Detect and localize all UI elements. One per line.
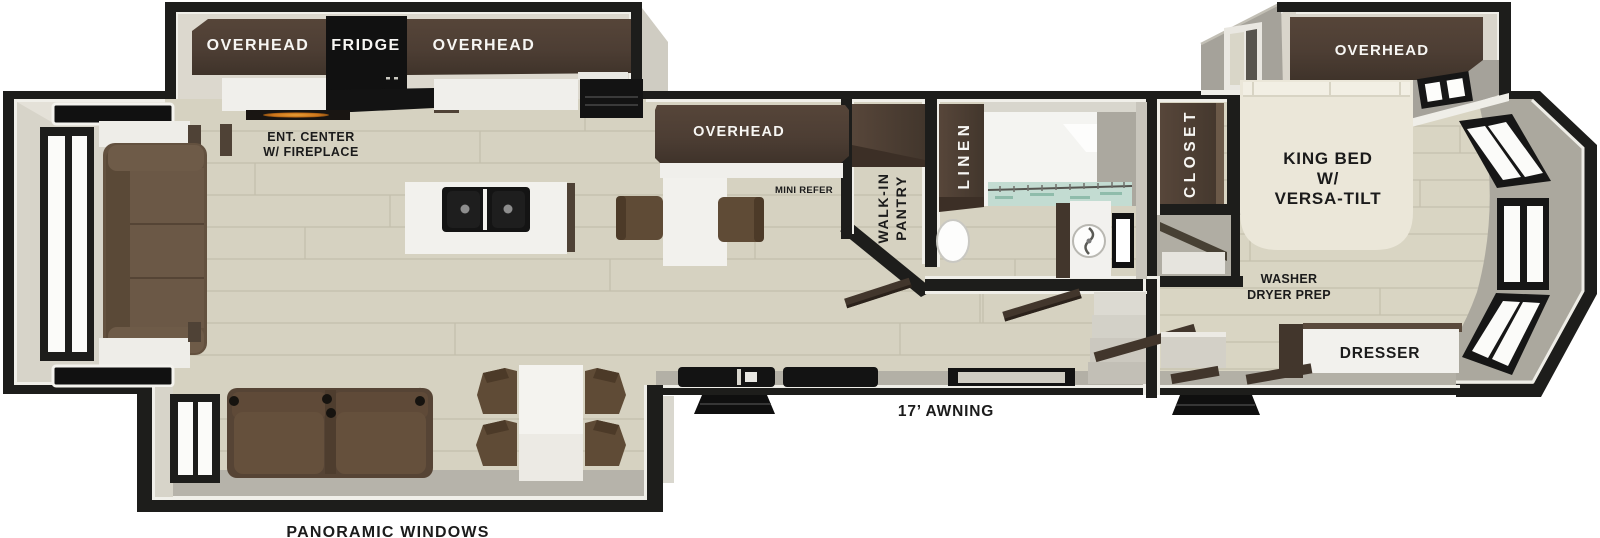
svg-text:ENT. CENTER: ENT. CENTER [267,130,354,144]
svg-text:17’ AWNING: 17’ AWNING [898,403,994,420]
svg-text:W/: W/ [1317,169,1339,188]
svg-text:KING BED: KING BED [1283,149,1373,168]
svg-text:PANORAMIC WINDOWS: PANORAMIC WINDOWS [286,524,489,538]
svg-text:FRIDGE: FRIDGE [331,37,400,54]
svg-text:DRESSER: DRESSER [1340,345,1421,362]
svg-text:PANTRY: PANTRY [893,175,909,241]
svg-text:VERSA-TILT: VERSA-TILT [1275,189,1382,208]
svg-text:WASHER: WASHER [1261,272,1318,286]
svg-text:OVERHEAD: OVERHEAD [1335,42,1430,59]
svg-text:OVERHEAD: OVERHEAD [693,124,785,140]
svg-text:W/ FIREPLACE: W/ FIREPLACE [263,145,359,159]
svg-text:LINEN: LINEN [956,121,973,190]
svg-text:MINI REFER: MINI REFER [775,185,833,196]
svg-text:OVERHEAD: OVERHEAD [207,37,310,54]
svg-text:WALK-IN: WALK-IN [875,172,891,243]
svg-text:DRYER PREP: DRYER PREP [1247,288,1331,302]
svg-text:OVERHEAD: OVERHEAD [433,37,536,54]
svg-text:CLOSET: CLOSET [1182,108,1199,198]
